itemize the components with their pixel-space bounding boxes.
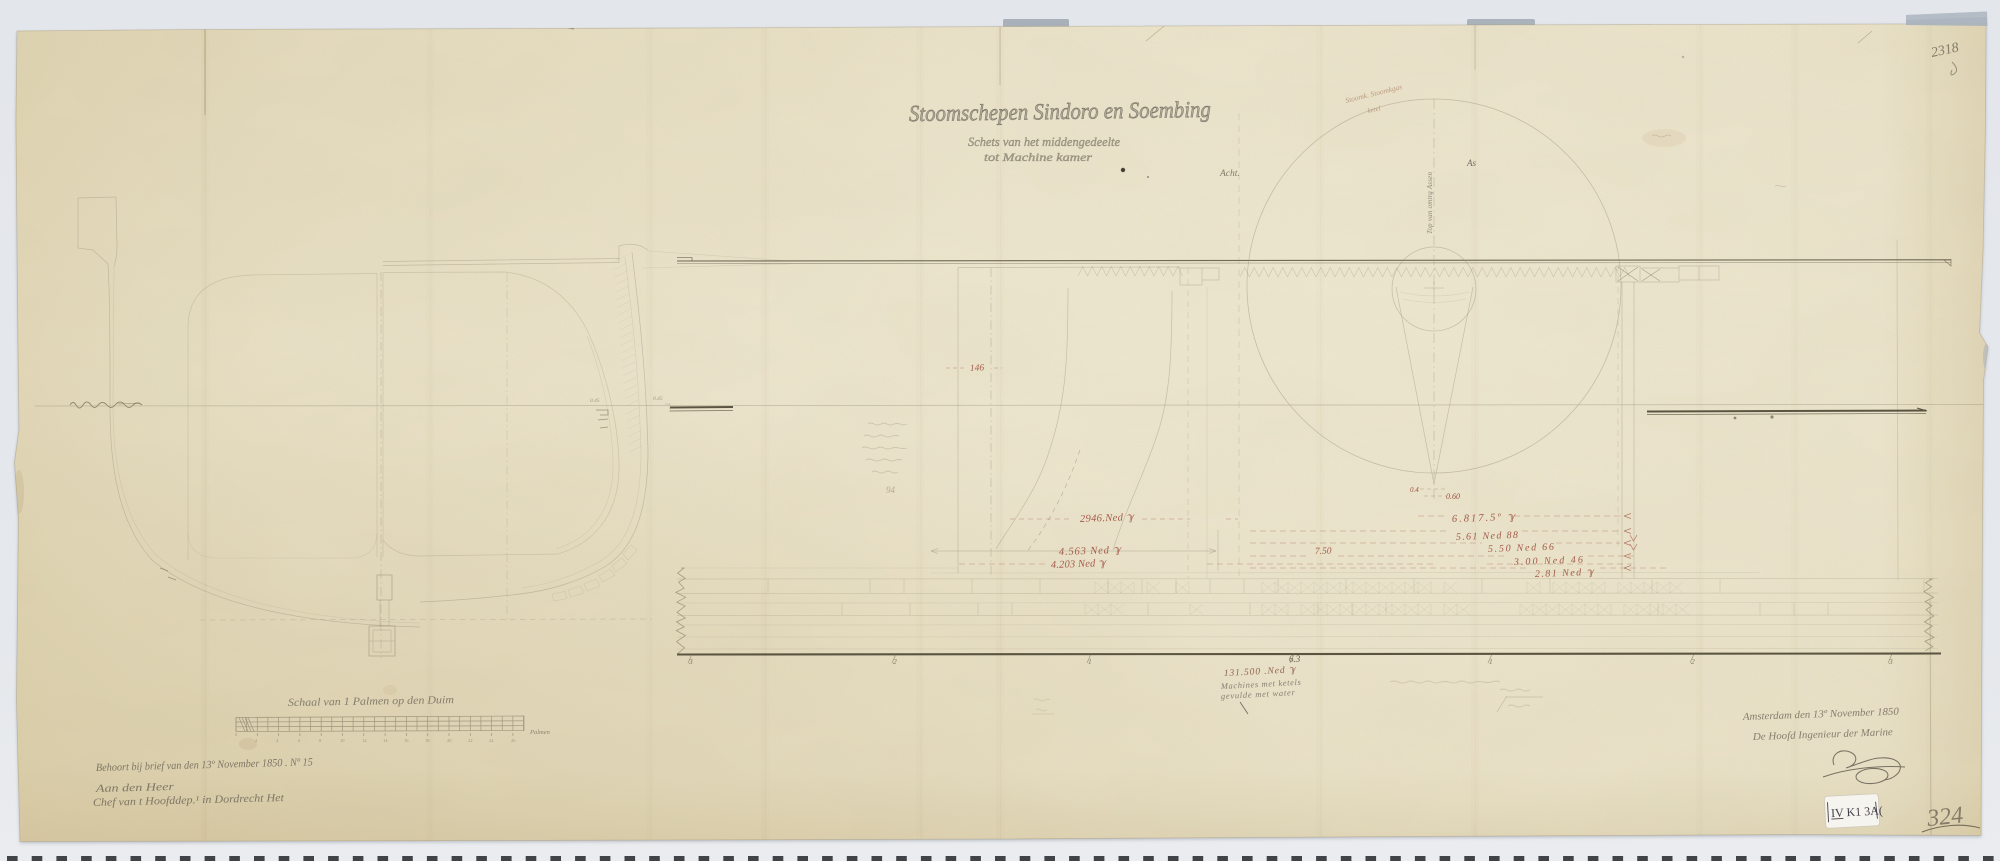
svg-text:22: 22 — [468, 738, 473, 743]
svg-text:Schets van het middengedeelte: Schets van het middengedeelte — [968, 134, 1120, 149]
svg-text:4.203 Ned ℽ: 4.203 Ned ℽ — [1051, 558, 1108, 571]
svg-text:12: 12 — [362, 738, 367, 743]
svg-text:7.50: 7.50 — [1315, 546, 1332, 557]
svg-text:16: 16 — [404, 738, 409, 743]
svg-text:Aan den Heer: Aan den Heer — [94, 781, 174, 795]
svg-text:3: 3 — [1888, 657, 1893, 666]
svg-text:26: 26 — [511, 738, 516, 743]
svg-text:24: 24 — [489, 738, 494, 743]
svg-text:1: 1 — [1088, 657, 1092, 666]
svg-text:Stoomschepen Sindoro en Soe: Stoomschepen Sindoro en Soembing — [909, 97, 1211, 126]
svg-text:Acht.: Acht. — [1219, 169, 1240, 179]
svg-text:14: 14 — [383, 738, 388, 743]
svg-text:2: 2 — [1691, 657, 1695, 666]
svg-text:0.60: 0.60 — [1446, 492, 1460, 501]
svg-text:3: 3 — [688, 657, 693, 666]
svg-text:Top van omtrg Assen: Top van omtrg Assen — [1426, 172, 1434, 235]
svg-text:4.563 Ned ℽ: 4.563 Ned ℽ — [1059, 545, 1123, 558]
svg-text:20: 20 — [447, 738, 452, 743]
svg-text:1: 1 — [1489, 657, 1493, 666]
svg-text:10: 10 — [340, 738, 345, 743]
svg-text:Palmen: Palmen — [529, 729, 550, 736]
svg-text:IV K1 3A(: IV K1 3A( — [1831, 803, 1883, 820]
svg-text:tot Machine kamer: tot Machine kamer — [984, 150, 1092, 164]
svg-text:2: 2 — [893, 657, 897, 666]
svg-text:324: 324 — [1925, 802, 1965, 832]
svg-text:2: 2 — [255, 738, 257, 743]
svg-text:As: As — [1466, 158, 1476, 168]
svg-text:0.4: 0.4 — [1410, 486, 1419, 494]
svg-text:0.45: 0.45 — [653, 395, 663, 402]
svg-text:146: 146 — [970, 363, 985, 374]
svg-text:6.3: 6.3 — [1289, 654, 1301, 664]
svg-text:18: 18 — [425, 738, 430, 743]
svg-text:2946.Ned ℽ: 2946.Ned ℽ — [1080, 512, 1136, 525]
svg-text:94: 94 — [886, 485, 896, 495]
svg-text:0.45: 0.45 — [590, 397, 600, 404]
